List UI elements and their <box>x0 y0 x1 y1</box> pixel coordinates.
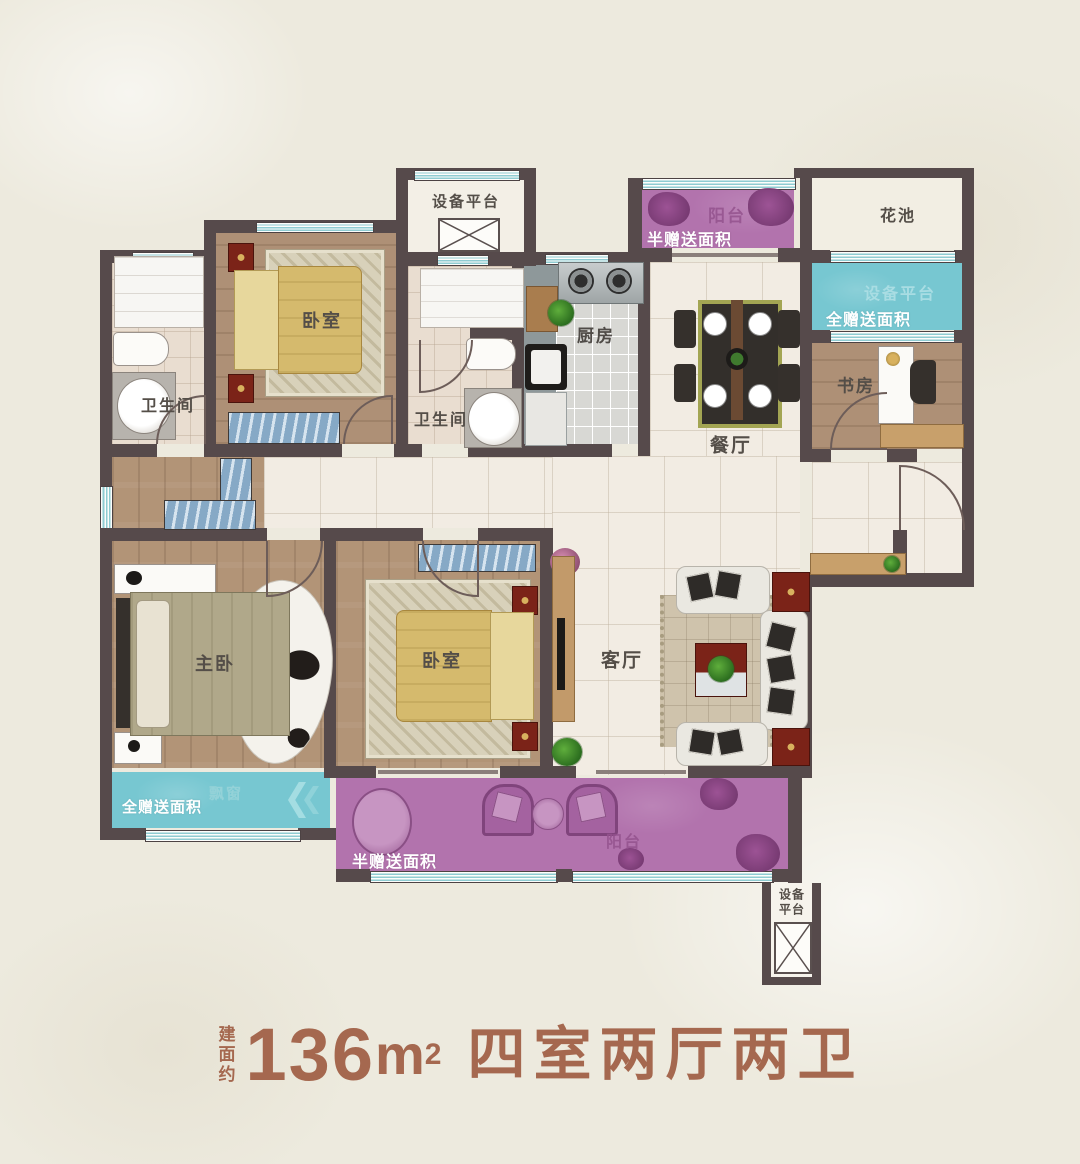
corridor-tile <box>264 457 552 528</box>
bathtub <box>420 268 524 328</box>
label-balcony-top: 阳台 <box>708 202 746 227</box>
equipment-box <box>774 922 812 974</box>
label-living: 客厅 <box>601 646 643 673</box>
wall <box>778 248 800 262</box>
kitchen-sink-basin <box>531 350 561 384</box>
wall <box>772 869 802 882</box>
bed-pillows <box>136 600 170 728</box>
label-study: 书房 <box>837 372 875 397</box>
wall <box>954 330 962 343</box>
chair <box>674 310 696 348</box>
plate <box>703 384 727 408</box>
label-bath-2: 卫生间 <box>414 406 468 430</box>
plant <box>648 192 690 226</box>
label-equipment-platform-right: 设备平台 <box>864 280 936 304</box>
knob <box>128 740 140 752</box>
wardrobe <box>228 412 340 444</box>
balcony-tub <box>352 788 412 856</box>
label-master: 主卧 <box>195 650 235 676</box>
sofa-cushion <box>686 572 715 602</box>
wall <box>100 828 146 840</box>
window <box>437 255 489 266</box>
wall <box>806 250 830 263</box>
sliding-door <box>378 770 498 774</box>
wall <box>812 883 821 985</box>
equipment-box <box>438 218 500 252</box>
wall <box>638 248 672 262</box>
wall <box>962 168 974 587</box>
window <box>572 871 774 883</box>
title-unit-sup: 2 <box>425 1038 442 1072</box>
sofa-cushion <box>766 654 796 684</box>
wall <box>298 828 336 840</box>
tv <box>126 571 142 585</box>
label-equipment-platform-bottom-2: 平台 <box>779 901 805 918</box>
side-table <box>772 572 810 612</box>
label-bath-1: 卫生间 <box>141 392 195 416</box>
label-bedroom-1: 卧室 <box>302 307 342 333</box>
plan-title: 建面约 136 m 2 四室两厅两卫 <box>0 1018 1080 1092</box>
plate <box>748 384 772 408</box>
desk-lamp <box>886 352 900 366</box>
bookshelf <box>880 424 964 448</box>
plate <box>748 312 772 336</box>
wall <box>788 766 802 883</box>
window <box>145 830 301 842</box>
title-prefix: 建面约 <box>217 1025 234 1085</box>
sofa-cushion <box>688 728 715 755</box>
nightstand <box>228 374 254 403</box>
chair <box>778 364 800 402</box>
wall <box>762 977 821 985</box>
bed-pillows <box>490 612 534 720</box>
plant <box>552 738 582 766</box>
bed-headboard <box>116 598 130 728</box>
sliding-door <box>596 770 686 774</box>
centerpiece <box>726 348 748 370</box>
chair <box>674 364 696 402</box>
wall <box>100 444 157 457</box>
sliding-door <box>672 253 778 257</box>
sink-basin <box>468 392 520 446</box>
wall <box>794 168 974 178</box>
wall <box>205 444 342 457</box>
plant <box>708 656 734 682</box>
chair <box>778 310 800 348</box>
wall <box>800 573 974 587</box>
wall <box>324 766 376 778</box>
plant <box>736 834 780 872</box>
stove-burner <box>568 268 594 294</box>
stove-burner <box>606 268 632 294</box>
wall <box>500 766 576 778</box>
plant <box>700 778 738 810</box>
annotation-half-gift-bottom: 半赠送面积 <box>352 848 437 872</box>
label-kitchen: 厨房 <box>577 322 615 347</box>
window <box>256 222 374 233</box>
kitchen-counter <box>525 392 567 446</box>
window <box>414 170 520 181</box>
plant <box>548 300 574 326</box>
floor-plan: 设备平台 阳台 半赠送面积 花池 设备平台 全赠送面积 书房 厨房 餐厅 卫生间… <box>0 0 1080 1164</box>
wardrobe <box>418 544 536 572</box>
wall <box>556 869 572 882</box>
balcony-table <box>532 798 564 830</box>
wall <box>524 168 536 265</box>
nightstand <box>228 243 254 272</box>
wall <box>204 250 216 457</box>
wall <box>800 449 831 462</box>
sofa-cushion <box>766 686 795 715</box>
wall <box>396 233 408 457</box>
wall <box>800 168 812 462</box>
shower <box>114 256 204 328</box>
window <box>370 871 558 883</box>
desk-chair <box>910 360 936 404</box>
wardrobe <box>164 500 256 530</box>
toilet <box>466 338 516 370</box>
label-flower-bed: 花池 <box>880 202 916 226</box>
annotation-full-gift-right: 全赠送面积 <box>826 306 911 330</box>
label-bedroom-2: 卧室 <box>422 647 462 673</box>
label-bay-window: 飘窗 <box>209 783 243 804</box>
title-unit: m <box>375 1027 425 1083</box>
sofa-cushion <box>716 728 744 756</box>
plant <box>884 556 900 572</box>
wall <box>812 330 830 343</box>
plant <box>748 188 794 226</box>
wall <box>762 883 771 985</box>
nightstand <box>512 586 538 615</box>
sofa-cushion <box>714 570 742 600</box>
toilet <box>113 332 169 366</box>
window <box>830 331 956 343</box>
wall <box>100 536 112 776</box>
nightstand <box>512 722 538 751</box>
side-table <box>772 728 810 766</box>
label-dining: 餐厅 <box>710 431 752 458</box>
title-area: 136 <box>246 1018 375 1092</box>
wall <box>394 444 422 457</box>
label-equipment-platform-top: 设备平台 <box>432 191 500 212</box>
bed-pillows <box>234 270 282 370</box>
label-balcony-bottom: 阳台 <box>606 828 642 852</box>
chair-pillow <box>576 792 607 823</box>
plate <box>703 312 727 336</box>
wall <box>887 449 917 462</box>
annotation-full-gift-left: 全赠送面积 <box>122 796 202 817</box>
title-rooms: 四室两厅两卫 <box>467 1026 863 1084</box>
window <box>830 251 956 263</box>
tv <box>557 618 565 690</box>
wall <box>396 168 408 233</box>
annotation-half-gift-top: 半赠送面积 <box>647 226 732 250</box>
